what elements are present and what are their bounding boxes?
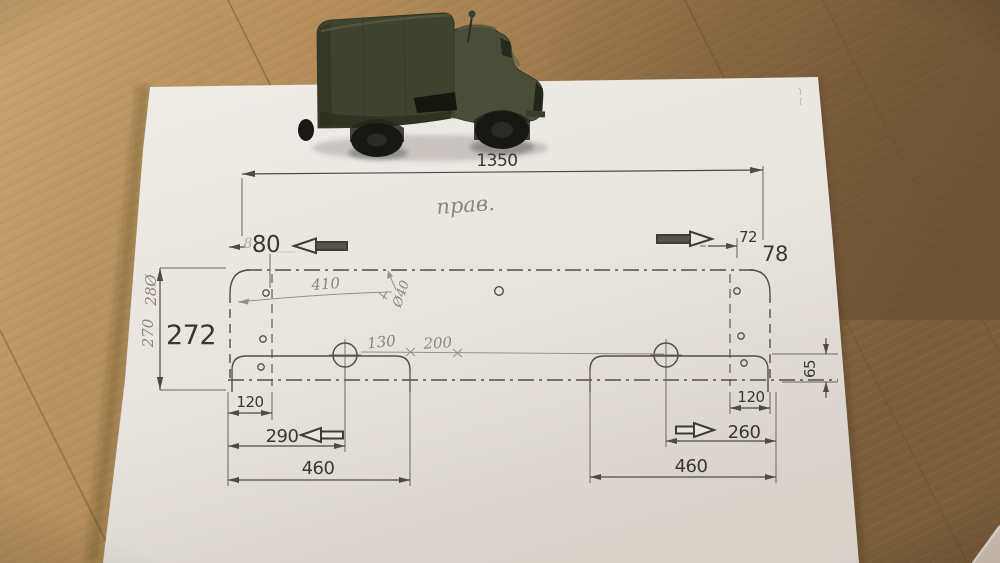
vignette <box>0 0 1000 563</box>
photo-of-technical-drawing: 1350 80 72 78 272 120 290 460 120 260 46… <box>0 0 1000 563</box>
